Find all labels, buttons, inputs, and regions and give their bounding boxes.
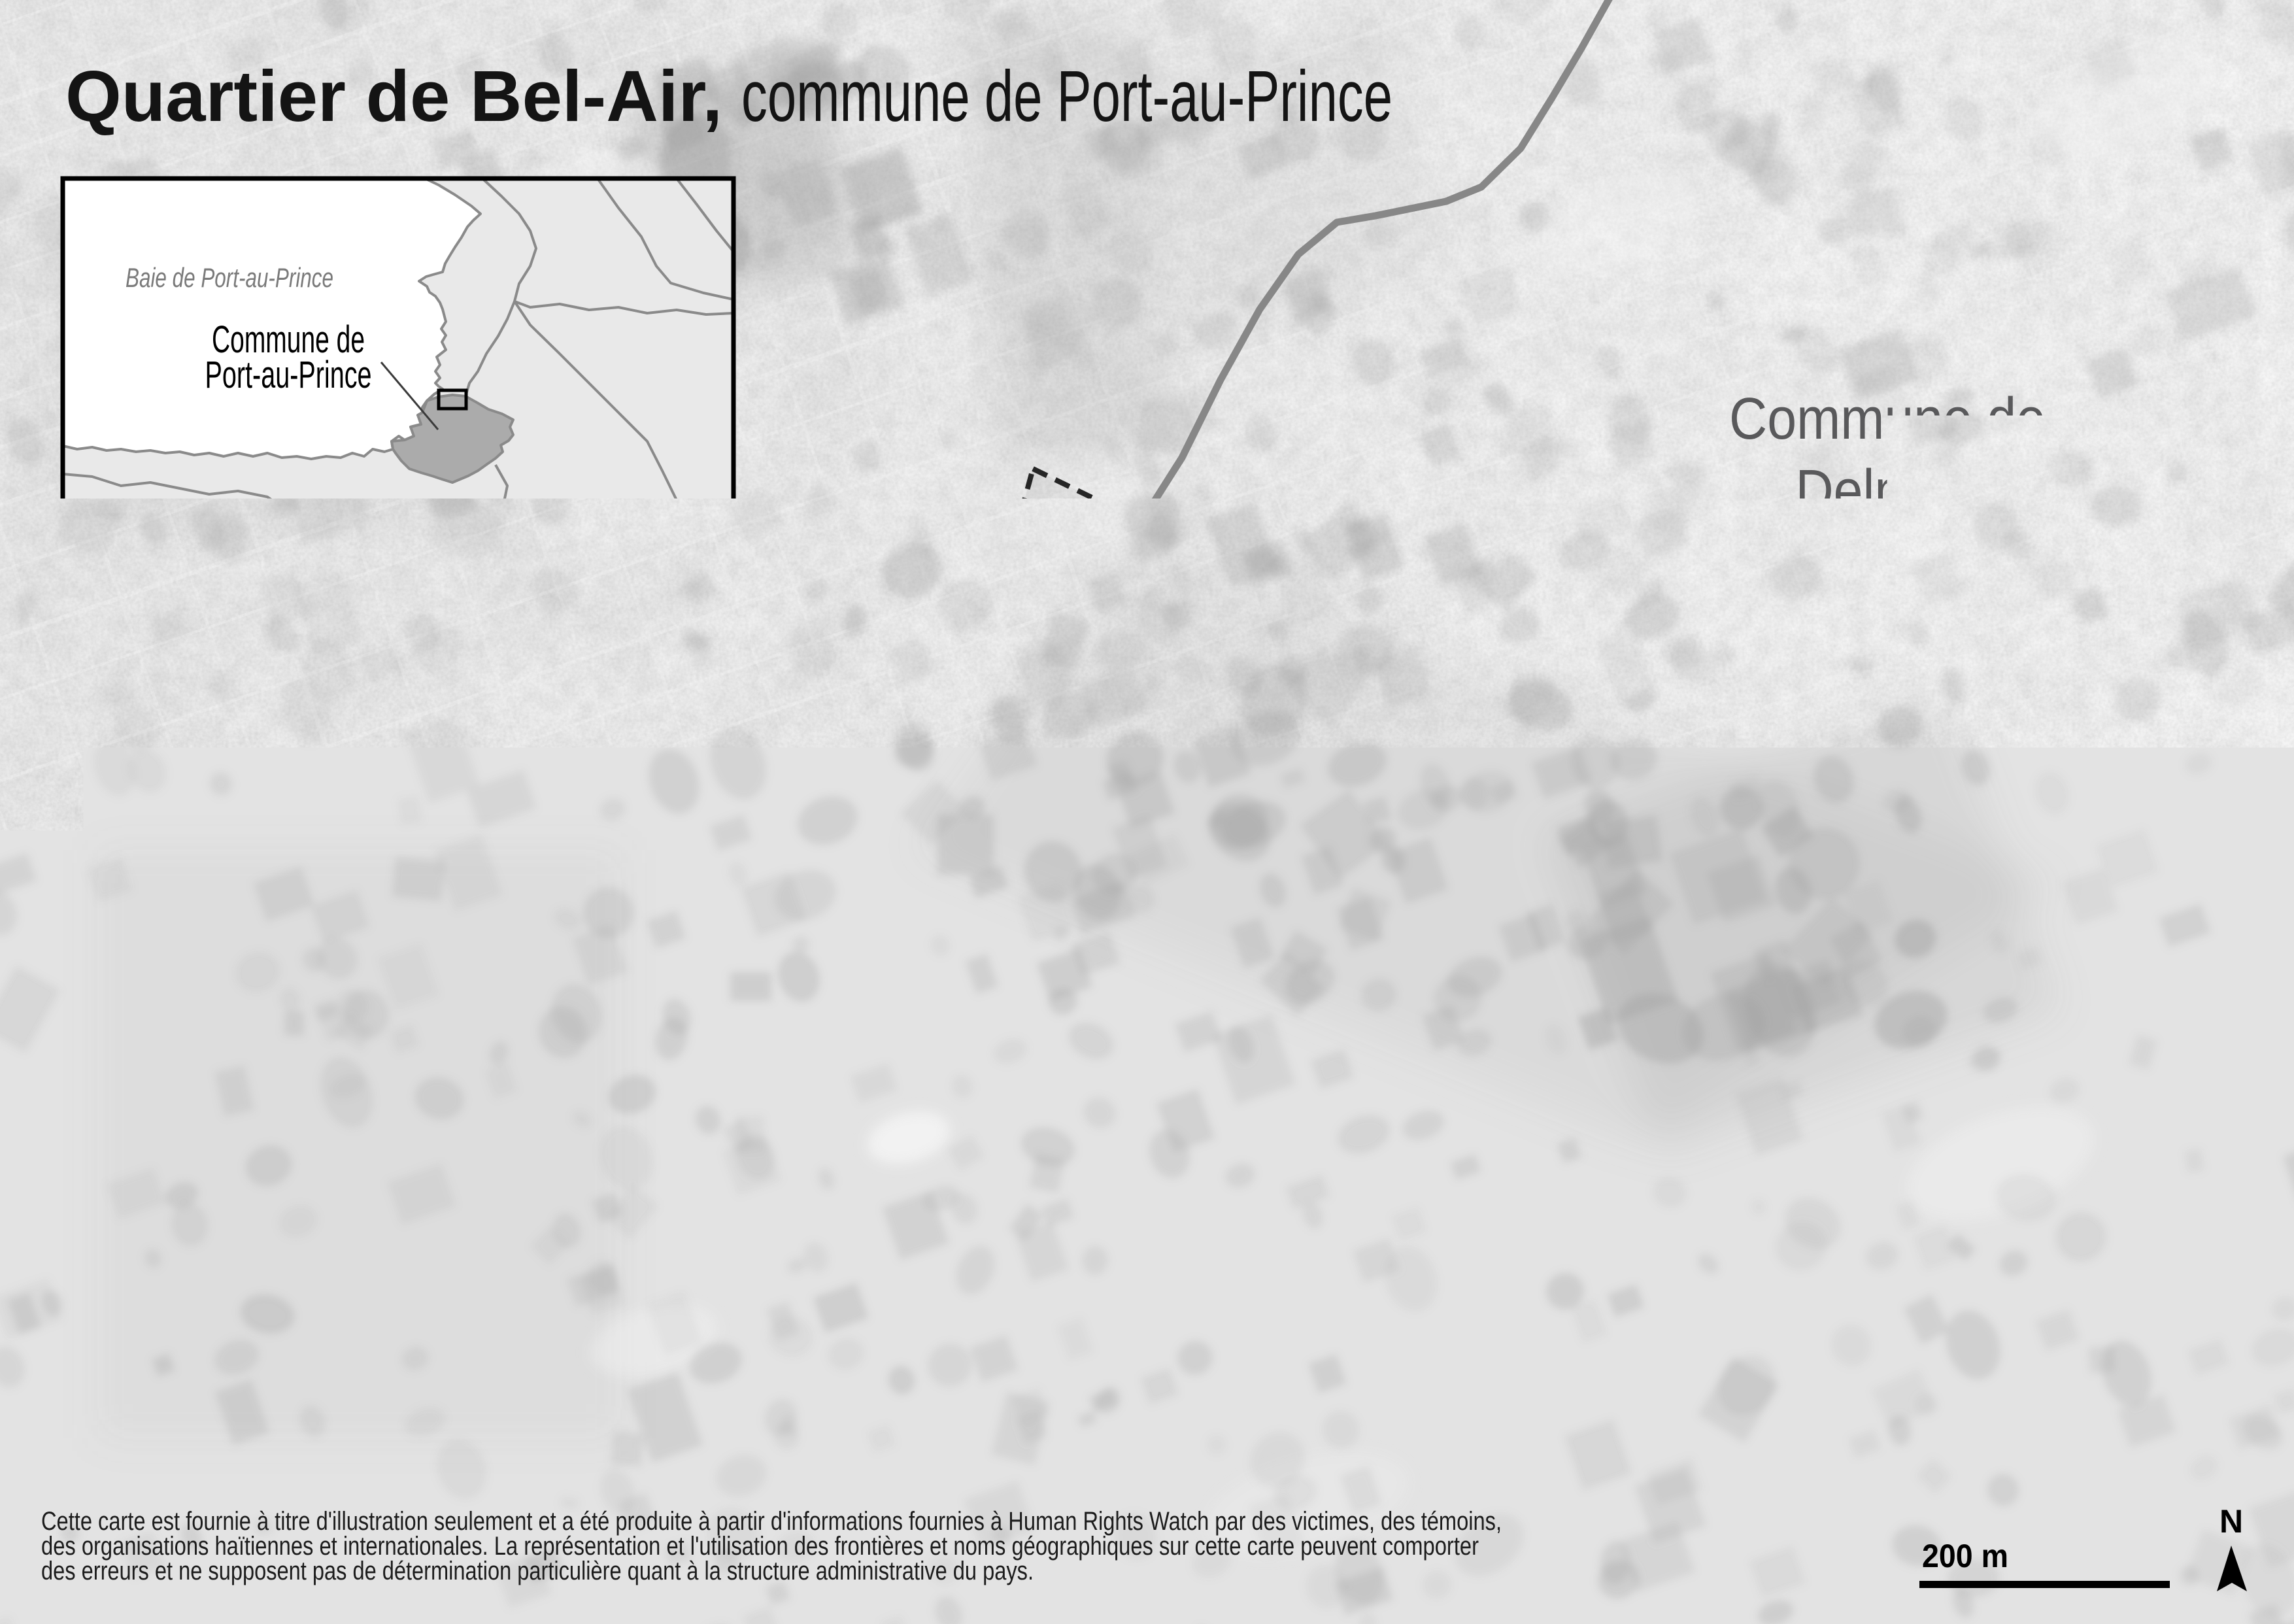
svg-text:Port-au-Prince: Port-au-Prince bbox=[433, 1188, 778, 1253]
svg-text:Delmas: Delmas bbox=[1796, 458, 1974, 524]
svg-text:N: N bbox=[2219, 1503, 2243, 1540]
svg-text:Commune de: Commune de bbox=[1729, 386, 2046, 452]
svg-text:Baie de Port-au-Prince: Baie de Port-au-Prince bbox=[126, 262, 333, 293]
svg-text:de Bel-Air: de Bel-Air bbox=[1211, 926, 1394, 976]
svg-text:Quartier: Quartier bbox=[1224, 870, 1379, 921]
svg-text:commune de Port-au-Prince: commune de Port-au-Prince bbox=[741, 56, 1392, 137]
svg-text:Commune de: Commune de bbox=[447, 1117, 762, 1183]
svg-text:Quartier de Bel-Air,: Quartier de Bel-Air, bbox=[65, 56, 722, 137]
svg-text:des erreurs et ne supposent pa: des erreurs et ne supposent pas de déter… bbox=[41, 1557, 1034, 1585]
svg-text:200 m: 200 m bbox=[1922, 1538, 2008, 1574]
svg-text:Port-au-Prince: Port-au-Prince bbox=[205, 354, 372, 396]
